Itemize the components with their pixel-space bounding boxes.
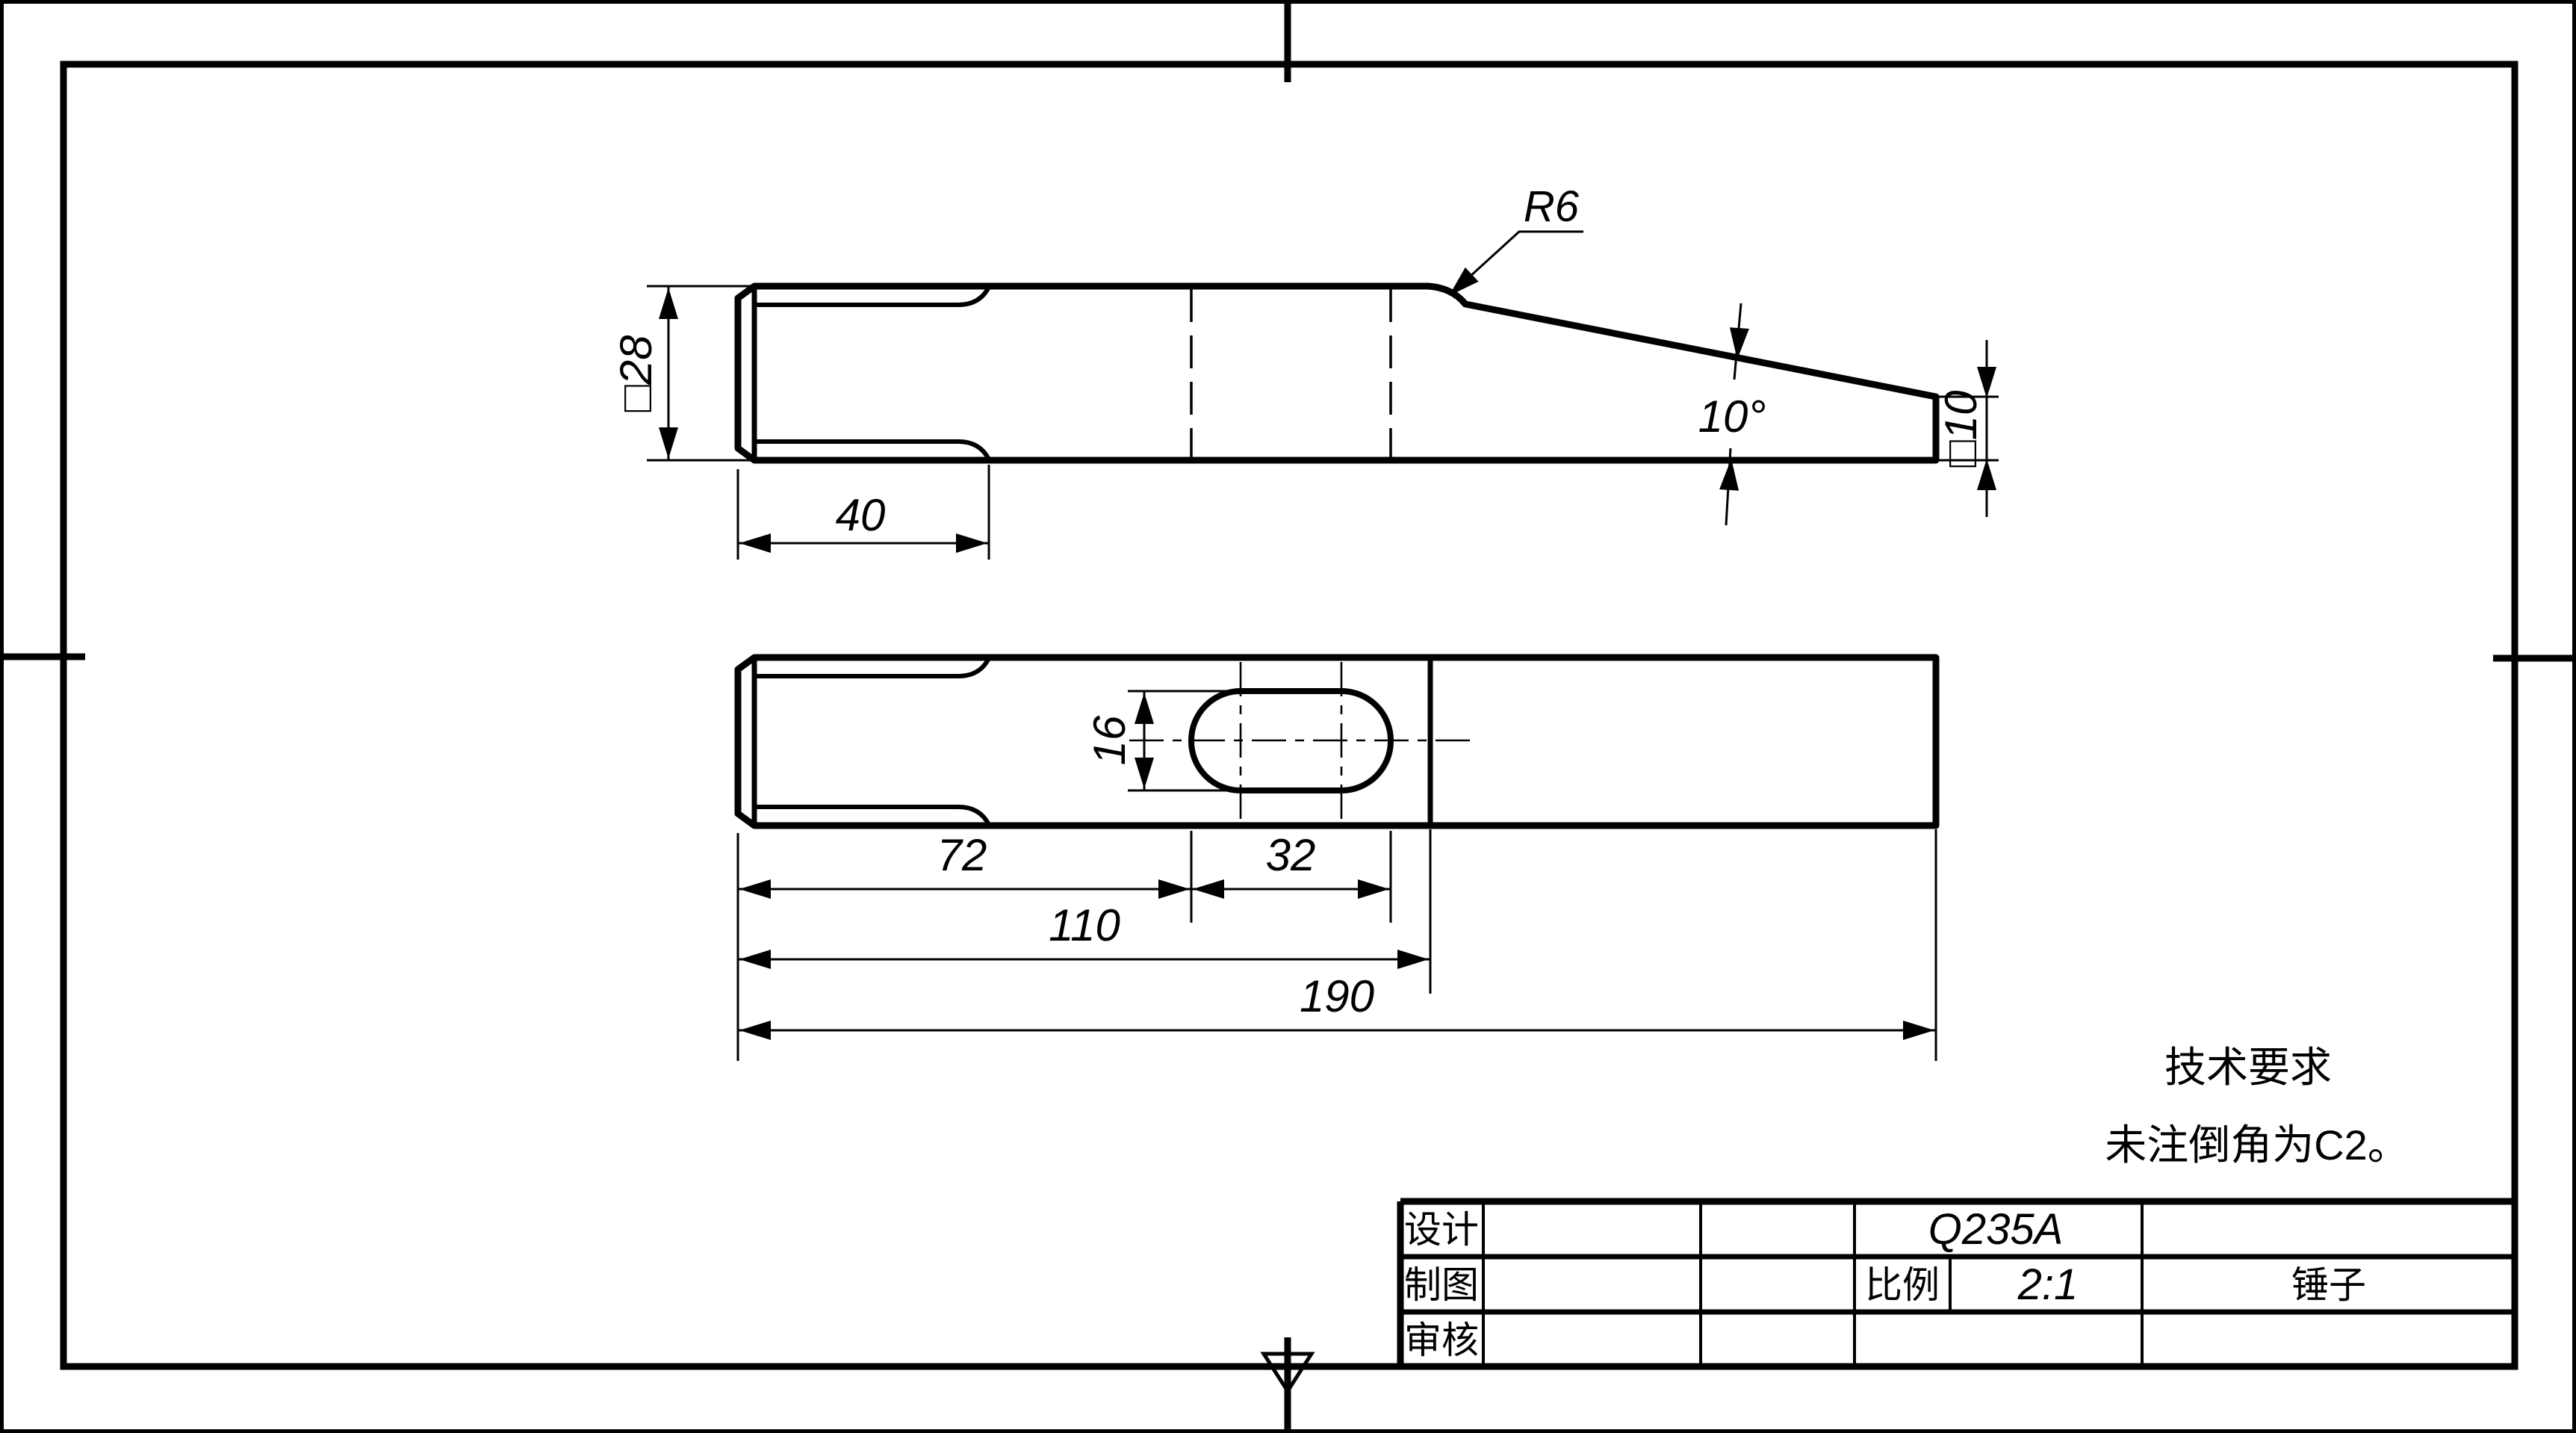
dim40-arrow-left	[739, 533, 771, 553]
dim72-arrow-right	[1158, 879, 1190, 899]
title-block-material: Q235A	[1928, 1205, 2064, 1254]
drawing-sheet: □28 40 R6 10° □10	[0, 0, 2576, 1433]
title-block: 设计 制图 审核 Q235A 比例 2:1 锤子	[1400, 1201, 2515, 1367]
dim190-arrow-left	[739, 1021, 771, 1040]
dim40-arrow-right	[956, 533, 987, 553]
dim16-label: 16	[1084, 715, 1135, 765]
dim72-label: 72	[937, 830, 987, 880]
dim28-arrow-up	[659, 288, 678, 319]
dim10-label: □10	[1936, 391, 1986, 468]
dim28-arrow-down	[659, 427, 678, 459]
dim110-arrow-left	[739, 950, 771, 969]
title-block-scale-label: 比例	[1865, 1264, 1940, 1306]
tech-req-line1: 未注倒角为C2。	[2105, 1121, 2409, 1169]
engineering-drawing-canvas: □28 40 R6 10° □10	[0, 0, 2576, 1433]
title-block-part-name: 锤子	[2291, 1264, 2366, 1306]
technical-requirements: 技术要求 未注倒角为C2。	[2105, 1044, 2409, 1169]
dim110-label: 110	[1049, 900, 1120, 950]
dim72-arrow-left	[739, 879, 771, 899]
dim32-arrow-left	[1193, 879, 1224, 899]
top-view	[738, 657, 1936, 826]
dim190-label: 190	[1300, 971, 1374, 1021]
title-block-scale-value: 2:1	[2017, 1260, 2079, 1309]
dimR6-label: R6	[1524, 182, 1580, 231]
title-block-draft-label: 制图	[1404, 1264, 1479, 1306]
dim10deg-label: 10°	[1698, 391, 1766, 442]
dim32-label: 32	[1266, 830, 1316, 880]
title-block-design-label: 设计	[1404, 1209, 1479, 1251]
dim190-arrow-right	[1903, 1021, 1934, 1040]
dim32-arrow-right	[1358, 879, 1389, 899]
title-block-check-label: 审核	[1404, 1319, 1479, 1361]
dim28-label: □28	[611, 335, 661, 412]
dim110-arrow-right	[1397, 950, 1429, 969]
dim40-label: 40	[836, 490, 886, 540]
tech-req-title: 技术要求	[2164, 1044, 2332, 1091]
